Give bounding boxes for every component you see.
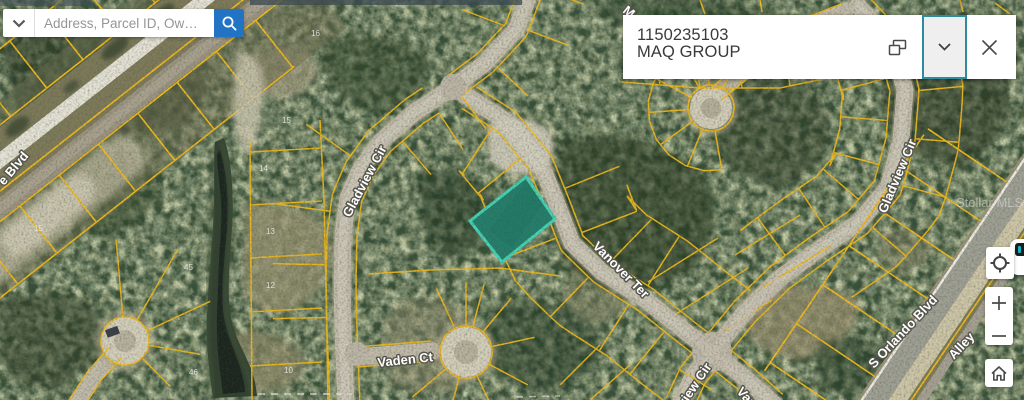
svg-text:14: 14 [259,164,268,173]
svg-text:15: 15 [34,224,43,233]
svg-text:45: 45 [184,263,193,272]
svg-text:16: 16 [311,29,320,38]
svg-text:46: 46 [189,368,198,377]
svg-text:10: 10 [284,366,293,375]
svg-text:13: 13 [266,227,275,236]
svg-text:Stellar MLS: Stellar MLS [956,195,1024,210]
svg-text:12: 12 [266,281,275,290]
svg-text:15: 15 [282,116,291,125]
